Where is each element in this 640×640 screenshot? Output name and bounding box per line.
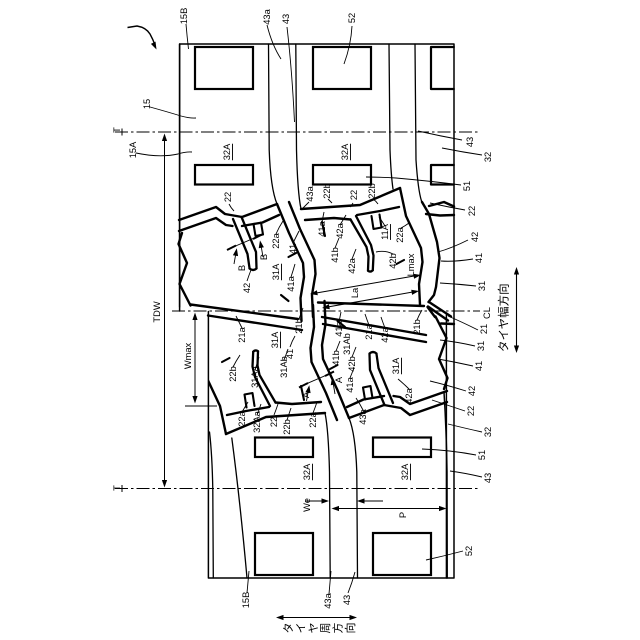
svg-text:42: 42: [242, 283, 252, 293]
svg-text:21b: 21b: [294, 318, 304, 334]
svg-text:31A: 31A: [270, 331, 280, 348]
svg-text:32A: 32A: [302, 463, 312, 480]
svg-text:42a: 42a: [380, 326, 390, 342]
svg-text:22b: 22b: [322, 183, 332, 199]
svg-text:43: 43: [342, 595, 352, 605]
svg-text:22: 22: [467, 206, 477, 216]
svg-text:21a: 21a: [237, 326, 247, 342]
svg-text:Lmax: Lmax: [406, 253, 416, 276]
svg-text:43: 43: [281, 14, 291, 24]
svg-text:A: A: [334, 376, 344, 383]
svg-text:42: 42: [470, 232, 480, 242]
svg-text:CL: CL: [482, 307, 492, 319]
svg-text:B: B: [237, 265, 247, 271]
svg-text:52: 52: [347, 13, 357, 23]
svg-text:22: 22: [349, 190, 359, 200]
svg-text:41b: 41b: [330, 247, 340, 263]
svg-text:42: 42: [467, 386, 477, 396]
svg-text:ヤ: ヤ: [308, 623, 320, 634]
svg-text:43a: 43a: [262, 8, 272, 24]
svg-text:T: T: [112, 127, 122, 133]
svg-text:41: 41: [474, 253, 484, 263]
svg-text:21b: 21b: [412, 319, 422, 335]
svg-text:21: 21: [479, 324, 489, 334]
svg-text:42b: 42b: [388, 253, 398, 269]
svg-text:42b: 42b: [347, 356, 357, 372]
svg-text:51: 51: [477, 450, 487, 460]
svg-text:42a: 42a: [404, 387, 414, 403]
svg-text:31Ab: 31Ab: [342, 333, 352, 355]
svg-text:15: 15: [142, 99, 152, 109]
svg-text:22: 22: [223, 192, 233, 202]
svg-text:A: A: [301, 391, 311, 398]
svg-text:31A: 31A: [271, 263, 281, 280]
svg-text:22a: 22a: [237, 410, 247, 426]
svg-text:B: B: [259, 254, 269, 260]
svg-text:51: 51: [462, 181, 472, 191]
svg-text:42a: 42a: [347, 257, 357, 273]
svg-text:32A: 32A: [400, 463, 410, 480]
svg-text:31A: 31A: [391, 357, 401, 374]
svg-text:向: 向: [343, 623, 357, 634]
svg-text:22: 22: [466, 406, 476, 416]
svg-text:31: 31: [477, 281, 487, 291]
svg-text:22a: 22a: [308, 411, 318, 427]
svg-text:32A: 32A: [222, 143, 232, 160]
svg-text:41: 41: [474, 361, 484, 371]
svg-text:41a: 41a: [286, 275, 296, 291]
svg-text:イ: イ: [295, 623, 307, 634]
svg-text:21a: 21a: [364, 323, 374, 339]
svg-text:15B: 15B: [179, 8, 189, 25]
svg-text:T: T: [112, 485, 122, 491]
svg-text:Wmax: Wmax: [183, 342, 193, 369]
svg-text:15B: 15B: [241, 592, 251, 609]
svg-text:52: 52: [464, 546, 474, 556]
svg-text:43: 43: [483, 473, 493, 483]
svg-text:方: 方: [331, 623, 345, 634]
svg-text:41a: 41a: [317, 220, 327, 236]
svg-text:タ: タ: [282, 623, 295, 634]
svg-text:43a: 43a: [358, 408, 368, 424]
svg-text:41b: 41b: [331, 350, 341, 366]
svg-text:32: 32: [483, 152, 493, 162]
svg-text:22a: 22a: [271, 232, 281, 248]
svg-text:TDW: TDW: [152, 301, 162, 322]
svg-text:32Aa: 32Aa: [252, 410, 262, 433]
svg-text:22a: 22a: [395, 226, 405, 242]
svg-text:41: 41: [288, 244, 298, 254]
svg-text:31: 31: [476, 341, 486, 351]
svg-text:22b: 22b: [282, 419, 292, 435]
svg-text:周: 周: [319, 623, 332, 634]
svg-text:La: La: [350, 287, 360, 298]
svg-text:32: 32: [483, 427, 493, 437]
svg-text:We: We: [302, 498, 312, 512]
svg-text:22: 22: [269, 417, 279, 427]
svg-text:43: 43: [465, 137, 475, 147]
svg-text:22b: 22b: [367, 183, 377, 199]
svg-text:43a: 43a: [323, 592, 333, 608]
svg-text:32A: 32A: [340, 143, 350, 160]
svg-text:15A: 15A: [128, 141, 138, 158]
svg-text:43a: 43a: [305, 185, 315, 201]
svg-text:タイヤ幅方向: タイヤ幅方向: [497, 283, 511, 352]
svg-text:41a: 41a: [345, 376, 355, 392]
svg-text:P: P: [398, 512, 408, 518]
svg-text:22b: 22b: [228, 366, 238, 382]
